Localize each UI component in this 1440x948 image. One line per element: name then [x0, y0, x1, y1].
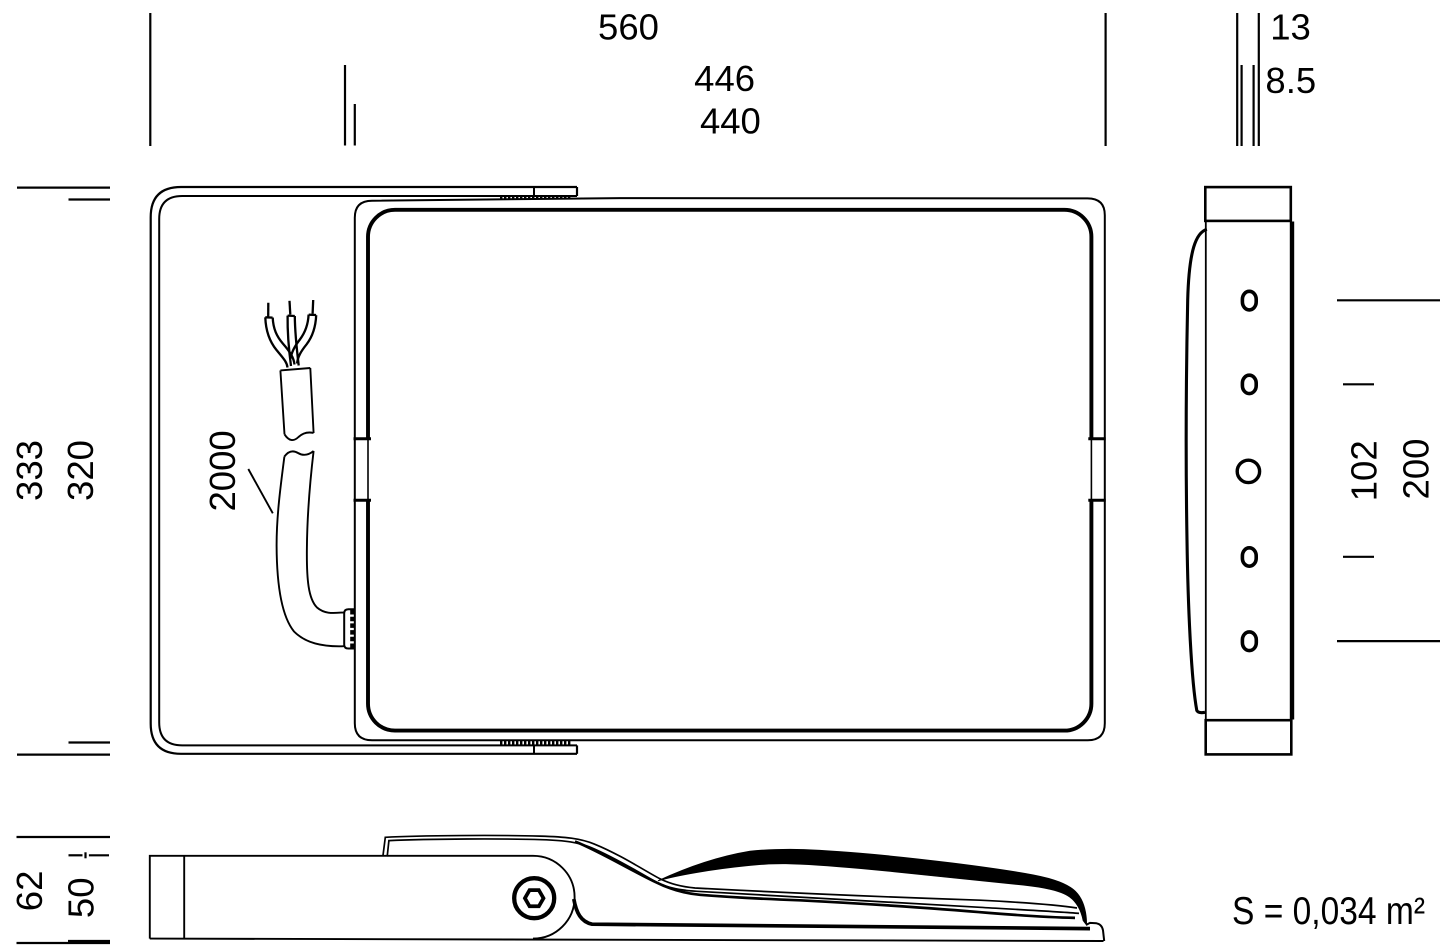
svg-text:S = 0,034 m²: S = 0,034 m²: [1232, 890, 1425, 933]
svg-text:13: 13: [1270, 7, 1311, 48]
svg-text:446: 446: [694, 58, 755, 99]
svg-text:440: 440: [700, 101, 761, 142]
svg-text:320: 320: [60, 440, 101, 501]
svg-text:560: 560: [598, 7, 659, 48]
svg-text:333: 333: [9, 440, 50, 501]
svg-text:50: 50: [61, 877, 102, 918]
svg-text:200: 200: [1395, 439, 1436, 500]
svg-text:62: 62: [9, 871, 50, 912]
svg-text:102: 102: [1343, 440, 1384, 501]
svg-text:2000: 2000: [202, 430, 243, 511]
svg-text:8.5: 8.5: [1265, 60, 1316, 101]
